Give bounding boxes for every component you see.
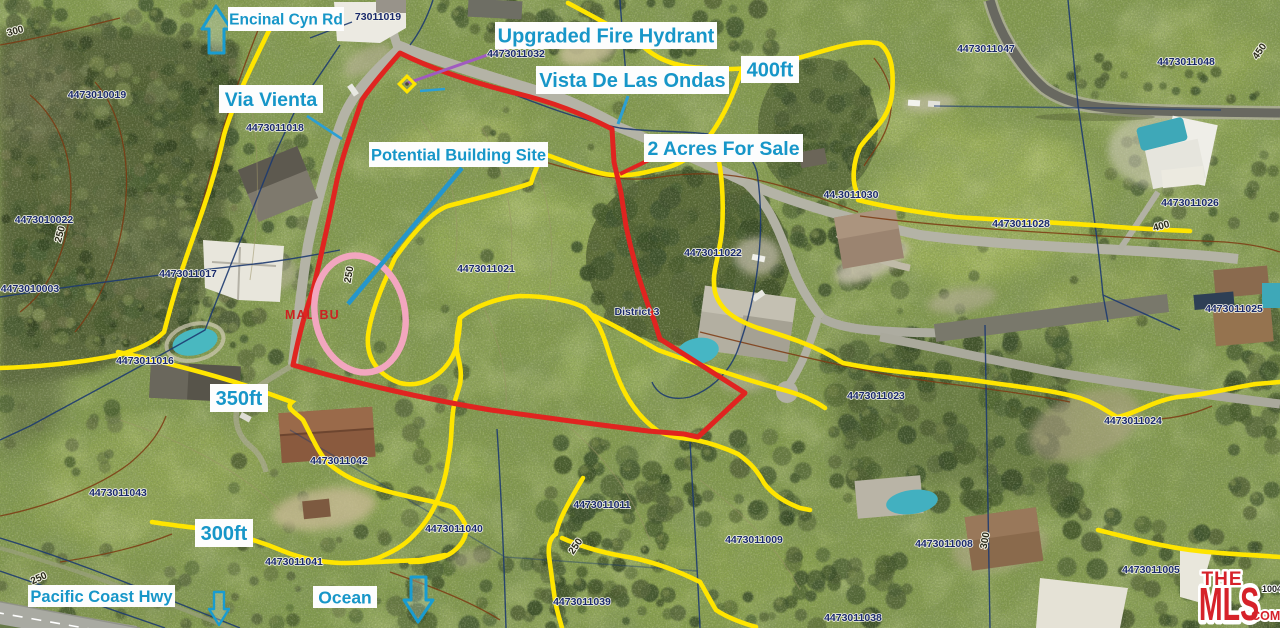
svg-text:Vista De Las Ondas: Vista De Las Ondas (539, 70, 725, 92)
svg-text:Encinal Cyn Rd: Encinal Cyn Rd (229, 12, 343, 29)
svg-text:4473011024: 4473011024 (1104, 415, 1162, 427)
svg-text:4473011021: 4473011021 (457, 263, 515, 275)
svg-text:Upgraded Fire Hydrant: Upgraded Fire Hydrant (498, 26, 715, 48)
svg-text:Pacific Coast Hwy: Pacific Coast Hwy (30, 588, 173, 606)
svg-text:1004: 1004 (1262, 584, 1280, 594)
svg-text:.COM: .COM (1248, 609, 1280, 623)
svg-text:4473010019: 4473010019 (68, 89, 127, 101)
svg-text:73011019: 73011019 (355, 11, 401, 23)
svg-text:4473011023: 4473011023 (847, 390, 905, 402)
svg-text:4473011043: 4473011043 (89, 487, 147, 499)
svg-text:400ft: 400ft (747, 60, 794, 82)
svg-text:4473011022: 4473011022 (684, 247, 742, 259)
svg-text:Ocean: Ocean (318, 587, 372, 607)
svg-text:Potential Building Site: Potential Building Site (371, 146, 546, 164)
svg-text:300ft: 300ft (201, 523, 248, 545)
svg-text:4473011038: 4473011038 (824, 612, 882, 624)
svg-text:4473010022: 4473010022 (15, 214, 74, 226)
svg-text:Via Vienta: Via Vienta (225, 89, 318, 111)
svg-text:4473011041: 4473011041 (265, 556, 323, 568)
svg-text:4473011026: 4473011026 (1161, 197, 1219, 209)
svg-text:4473011047: 4473011047 (957, 43, 1015, 55)
svg-text:District 3: District 3 (615, 306, 660, 318)
svg-text:4473011009: 4473011009 (725, 534, 783, 546)
svg-text:4473011017: 4473011017 (159, 268, 217, 280)
svg-text:350ft: 350ft (216, 388, 263, 410)
svg-text:4473011028: 4473011028 (992, 218, 1050, 230)
svg-text:4473011042: 4473011042 (310, 455, 368, 467)
svg-text:4473011016: 4473011016 (116, 355, 174, 367)
svg-text:4473011005: 4473011005 (1122, 564, 1180, 576)
svg-text:4473011048: 4473011048 (1157, 56, 1215, 68)
svg-text:4473011040: 4473011040 (425, 523, 483, 535)
svg-text:4473011018: 4473011018 (246, 122, 304, 134)
svg-text:4473010003: 4473010003 (1, 283, 60, 295)
svg-text:2 Acres For Sale: 2 Acres For Sale (647, 138, 799, 160)
svg-text:4473011025: 4473011025 (1205, 303, 1263, 315)
svg-text:4473011032: 4473011032 (487, 48, 545, 60)
svg-text:4473011008: 4473011008 (915, 538, 973, 550)
svg-text:44.3011030: 44.3011030 (824, 189, 879, 201)
svg-text:4473011011: 4473011011 (573, 499, 630, 511)
svg-text:4473011039: 4473011039 (553, 596, 611, 608)
